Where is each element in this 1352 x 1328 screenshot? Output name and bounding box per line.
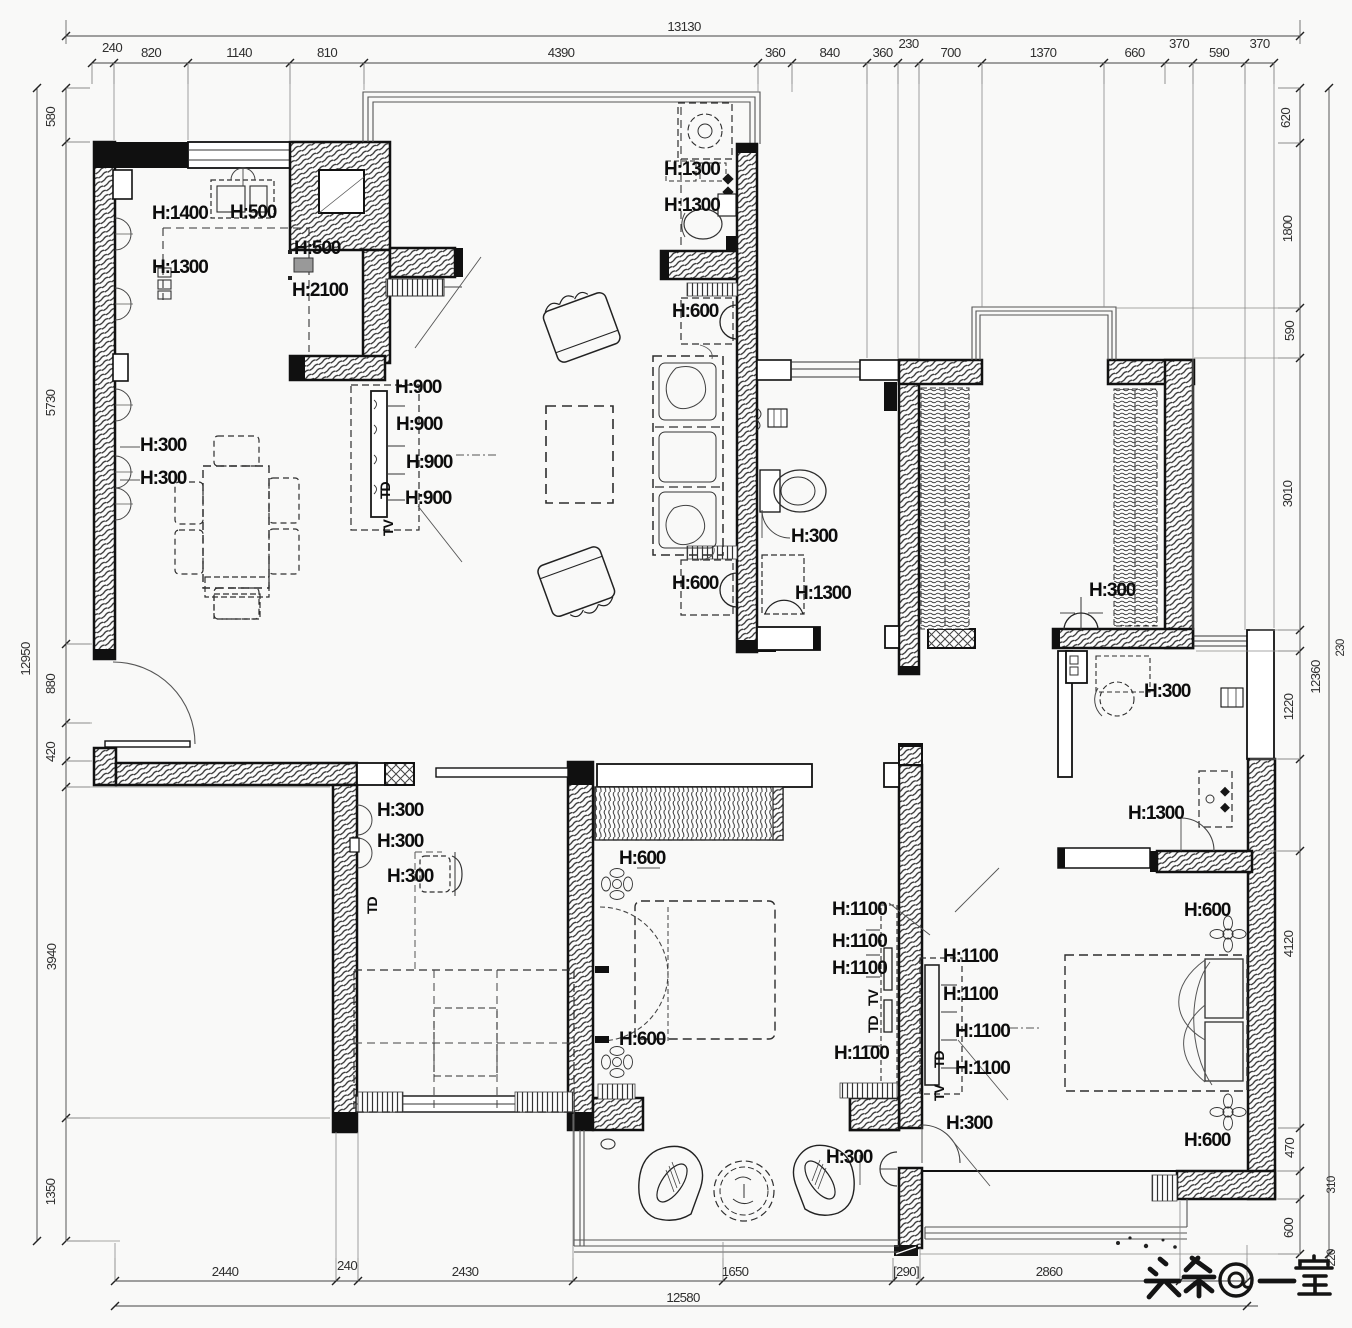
svg-text:H:300: H:300 — [1089, 580, 1136, 601]
svg-text:620: 620 — [1278, 108, 1293, 128]
svg-text:1650: 1650 — [722, 1264, 749, 1279]
svg-text:TD: TD — [377, 482, 393, 499]
svg-text:H:1100: H:1100 — [943, 946, 998, 967]
svg-text:H:1300: H:1300 — [1128, 803, 1184, 824]
svg-text:H:2100: H:2100 — [292, 280, 348, 301]
svg-text:13130: 13130 — [667, 19, 701, 34]
svg-text:4120: 4120 — [1281, 930, 1296, 957]
svg-text:12950: 12950 — [18, 642, 33, 676]
svg-text:12360: 12360 — [1308, 660, 1323, 694]
svg-text:H:300: H:300 — [387, 866, 434, 887]
svg-text:1350: 1350 — [43, 1178, 58, 1205]
svg-text:H:900: H:900 — [406, 452, 453, 473]
svg-text:2430: 2430 — [452, 1264, 479, 1279]
svg-text:TD: TD — [364, 897, 380, 914]
svg-text:820: 820 — [141, 45, 161, 60]
svg-text:660: 660 — [1125, 45, 1145, 60]
svg-text:420: 420 — [43, 742, 58, 762]
svg-text:H:1300: H:1300 — [152, 257, 208, 278]
svg-text:880: 880 — [43, 674, 58, 694]
svg-text:[290]: [290] — [893, 1264, 919, 1279]
svg-text:580: 580 — [43, 107, 58, 127]
svg-text:H:300: H:300 — [140, 468, 187, 489]
svg-text:H:1100: H:1100 — [832, 958, 887, 979]
svg-text:H:1300: H:1300 — [795, 583, 851, 604]
svg-text:810: 810 — [317, 45, 337, 60]
svg-text:TD: TD — [931, 1051, 947, 1068]
svg-text:310: 310 — [1326, 1176, 1338, 1193]
svg-text:H:1100: H:1100 — [943, 984, 998, 1005]
svg-text:H:600: H:600 — [672, 573, 719, 594]
svg-text:230: 230 — [1335, 639, 1347, 656]
svg-text:H:1100: H:1100 — [955, 1058, 1010, 1079]
svg-text:H:1300: H:1300 — [664, 195, 720, 216]
svg-text:3940: 3940 — [44, 943, 59, 970]
svg-text:3010: 3010 — [1280, 480, 1295, 507]
svg-text:590: 590 — [1282, 321, 1297, 341]
svg-text:H:600: H:600 — [1184, 1130, 1231, 1151]
svg-text:700: 700 — [941, 45, 961, 60]
svg-text:H:600: H:600 — [619, 848, 666, 869]
svg-text:240: 240 — [337, 1258, 357, 1273]
svg-text:H:300: H:300 — [140, 435, 187, 456]
svg-text:5730: 5730 — [43, 389, 58, 416]
svg-text:240: 240 — [102, 40, 122, 55]
svg-text:H:600: H:600 — [1184, 900, 1231, 921]
svg-text:H:1100: H:1100 — [834, 1043, 889, 1064]
svg-text:590: 590 — [1209, 45, 1229, 60]
svg-text:H:900: H:900 — [396, 414, 443, 435]
svg-text:1370: 1370 — [1030, 45, 1057, 60]
svg-text:H:300: H:300 — [377, 831, 424, 852]
svg-text:TV: TV — [380, 519, 396, 536]
svg-text:1140: 1140 — [226, 45, 252, 60]
svg-text:H:300: H:300 — [946, 1113, 993, 1134]
svg-text:H:600: H:600 — [619, 1029, 666, 1050]
svg-text:H:1100: H:1100 — [955, 1021, 1010, 1042]
svg-text:840: 840 — [820, 45, 840, 60]
svg-text:2440: 2440 — [212, 1264, 239, 1279]
svg-text:360: 360 — [873, 45, 893, 60]
svg-text:1220: 1220 — [1281, 693, 1296, 720]
svg-text:370: 370 — [1250, 36, 1270, 51]
svg-text:H:900: H:900 — [405, 488, 452, 509]
svg-text:360: 360 — [765, 45, 785, 60]
svg-text:230: 230 — [899, 36, 919, 51]
svg-text:H:300: H:300 — [1144, 681, 1191, 702]
svg-text:12580: 12580 — [666, 1290, 700, 1305]
svg-text:H:500: H:500 — [230, 202, 277, 223]
svg-text:H:300: H:300 — [791, 526, 838, 547]
svg-text:H:300: H:300 — [826, 1147, 873, 1168]
svg-text:H:1400: H:1400 — [152, 203, 208, 224]
svg-text:H:1100: H:1100 — [832, 899, 887, 920]
svg-text:2860: 2860 — [1036, 1264, 1063, 1279]
svg-text:H:1100: H:1100 — [832, 931, 887, 952]
svg-text:TV: TV — [865, 989, 881, 1006]
svg-text:600: 600 — [1281, 1218, 1296, 1238]
svg-text:H:600: H:600 — [672, 301, 719, 322]
svg-text:TV: TV — [931, 1084, 947, 1101]
svg-text:370: 370 — [1169, 36, 1189, 51]
svg-text:H:300: H:300 — [377, 800, 424, 821]
svg-text:H:1300: H:1300 — [664, 159, 720, 180]
svg-text:H:900: H:900 — [395, 377, 442, 398]
svg-text:TD: TD — [865, 1016, 881, 1033]
svg-text:1800: 1800 — [1280, 215, 1295, 242]
svg-text:470: 470 — [1282, 1138, 1297, 1158]
svg-text:H:500: H:500 — [294, 238, 341, 259]
svg-text:4390: 4390 — [548, 45, 575, 60]
